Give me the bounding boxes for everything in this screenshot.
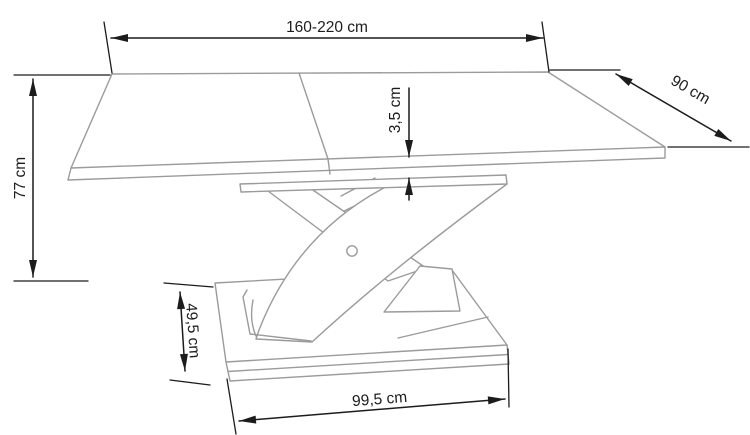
diagram-canvas: 160-220 cm 90 cm 77 cm 3,5 cm 49,5 cm 99…: [0, 0, 750, 435]
witness-line: [104, 22, 112, 73]
dim-label-table-height: 77 cm: [12, 157, 29, 199]
dim-label-base-width: 99,5 cm: [351, 389, 407, 410]
tabletop-top-face: [71, 72, 665, 168]
witness-line: [170, 380, 210, 385]
witness-line: [164, 283, 213, 287]
dim-base-depth: 49,5 cm: [164, 283, 213, 385]
dim-base-width: 99,5 cm: [227, 349, 509, 434]
tabletop: [68, 72, 665, 180]
witness-line: [227, 379, 236, 434]
pivot-knob: [347, 246, 357, 256]
dim-label-base-depth: 49,5 cm: [182, 303, 203, 359]
dim-label-tabletop-length: 160-220 cm: [286, 19, 368, 36]
dim-label-tabletop-depth: 90 cm: [668, 72, 713, 108]
witness-line: [542, 22, 549, 72]
dim-label-tabletop-thickness: 3,5 cm: [387, 87, 404, 134]
table-dimension-diagram: 160-220 cm 90 cm 77 cm 3,5 cm 49,5 cm 99…: [0, 0, 750, 435]
dim-table-height: 77 cm: [12, 75, 110, 281]
dim-tabletop-length: 160-220 cm: [104, 19, 549, 73]
